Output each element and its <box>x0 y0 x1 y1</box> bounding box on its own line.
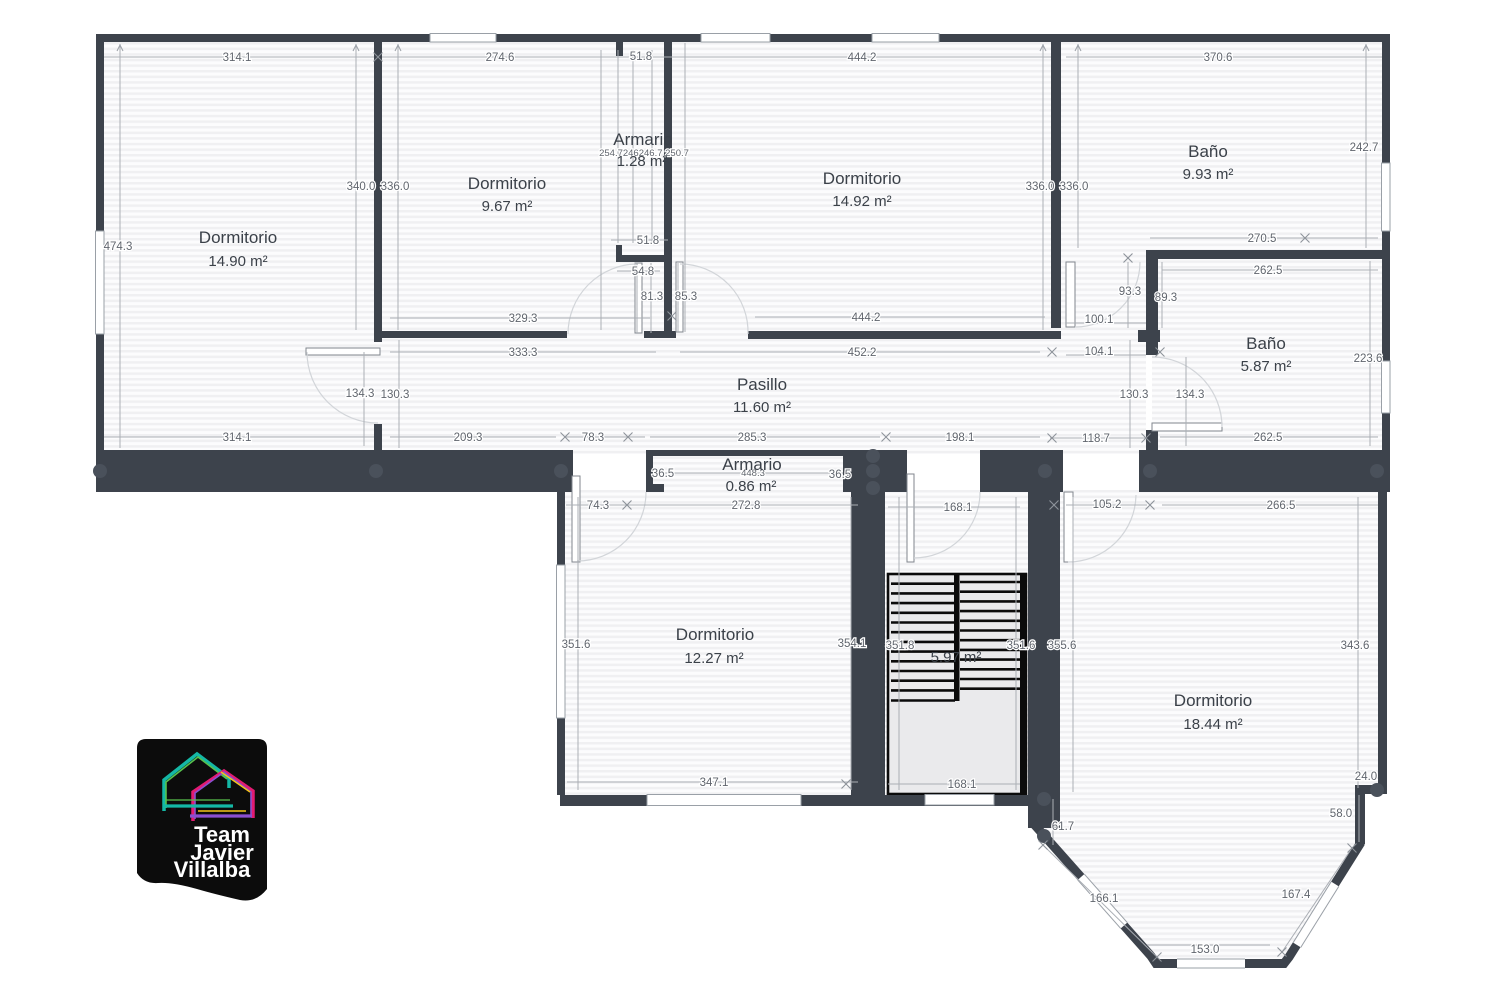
svg-text:209.3: 209.3 <box>454 432 483 444</box>
svg-text:340.0: 340.0 <box>347 181 376 193</box>
svg-text:54.8: 54.8 <box>632 266 654 278</box>
svg-text:343.6: 343.6 <box>1341 640 1370 652</box>
svg-text:354.1: 354.1 <box>838 638 867 650</box>
svg-text:262.5: 262.5 <box>1254 432 1283 444</box>
svg-text:336.0: 336.0 <box>1060 181 1089 193</box>
svg-text:134.3: 134.3 <box>346 388 375 400</box>
svg-text:314.1: 314.1 <box>223 52 252 64</box>
svg-text:153.0: 153.0 <box>1191 944 1220 956</box>
svg-text:347.1: 347.1 <box>700 777 729 789</box>
svg-text:Dormitorio: Dormitorio <box>199 228 277 247</box>
svg-text:444.2: 444.2 <box>848 52 877 64</box>
svg-text:242.7: 242.7 <box>1350 142 1379 154</box>
svg-text:36.5: 36.5 <box>829 469 851 481</box>
svg-text:74.3: 74.3 <box>587 500 609 512</box>
svg-text:14.92 m²: 14.92 m² <box>832 193 891 210</box>
svg-text:Dormitorio: Dormitorio <box>676 625 754 644</box>
svg-text:9.67 m²: 9.67 m² <box>482 198 533 215</box>
svg-text:Armario: Armario <box>613 130 673 149</box>
svg-text:168.1: 168.1 <box>948 779 977 791</box>
svg-text:355.6: 355.6 <box>1048 640 1077 652</box>
svg-text:274.6: 274.6 <box>486 52 515 64</box>
svg-text:351.8: 351.8 <box>886 640 915 652</box>
svg-text:270.5: 270.5 <box>1248 233 1277 245</box>
svg-text:Dormitorio: Dormitorio <box>823 169 901 188</box>
svg-text:36.5: 36.5 <box>652 468 674 480</box>
svg-text:Dormitorio: Dormitorio <box>468 174 546 193</box>
svg-text:Baño: Baño <box>1246 334 1286 353</box>
svg-text:5.97 m²: 5.97 m² <box>931 649 982 666</box>
svg-text:314.1: 314.1 <box>223 432 252 444</box>
svg-text:336.0: 336.0 <box>1026 181 1055 193</box>
svg-text:5.87 m²: 5.87 m² <box>1241 358 1292 375</box>
svg-text:130.3: 130.3 <box>1120 389 1149 401</box>
svg-text:85.3: 85.3 <box>675 291 697 303</box>
svg-text:444.2: 444.2 <box>852 312 881 324</box>
svg-text:223.6: 223.6 <box>1354 353 1383 365</box>
svg-text:351.6: 351.6 <box>1007 640 1036 652</box>
svg-text:1.28 m²: 1.28 m² <box>617 153 668 170</box>
svg-text:105.2: 105.2 <box>1093 499 1122 511</box>
svg-text:452.2: 452.2 <box>848 347 877 359</box>
svg-text:78.3: 78.3 <box>582 432 604 444</box>
svg-text:118.7: 118.7 <box>1082 433 1110 445</box>
svg-text:81.3: 81.3 <box>641 291 663 303</box>
svg-text:0.86 m²: 0.86 m² <box>726 478 777 495</box>
svg-text:130.3: 130.3 <box>381 389 410 401</box>
svg-text:24.0: 24.0 <box>1355 771 1377 783</box>
svg-text:Dormitorio: Dormitorio <box>1174 691 1252 710</box>
svg-text:336.0: 336.0 <box>381 181 410 193</box>
svg-text:Pasillo: Pasillo <box>737 375 787 394</box>
svg-text:Villalba: Villalba <box>174 857 251 882</box>
svg-text:333.3: 333.3 <box>509 347 538 359</box>
svg-text:370.6: 370.6 <box>1204 52 1233 64</box>
svg-text:Baño: Baño <box>1188 142 1228 161</box>
svg-text:14.90 m²: 14.90 m² <box>208 253 267 270</box>
svg-text:104.1: 104.1 <box>1085 346 1114 358</box>
svg-text:9.93 m²: 9.93 m² <box>1183 166 1234 183</box>
svg-text:198.1: 198.1 <box>946 432 975 444</box>
svg-text:89.3: 89.3 <box>1155 292 1177 304</box>
svg-text:474.3: 474.3 <box>104 241 133 253</box>
svg-text:51.8: 51.8 <box>630 51 652 63</box>
svg-text:100.1: 100.1 <box>1085 314 1114 326</box>
svg-text:58.0: 58.0 <box>1330 808 1352 820</box>
svg-text:351.6: 351.6 <box>562 639 591 651</box>
svg-text:166.1: 166.1 <box>1090 893 1119 905</box>
svg-text:168.1: 168.1 <box>944 502 973 514</box>
svg-text:266.5: 266.5 <box>1267 500 1296 512</box>
svg-text:93.3: 93.3 <box>1119 286 1141 298</box>
svg-text:285.3: 285.3 <box>738 432 767 444</box>
svg-text:61.7: 61.7 <box>1052 821 1074 833</box>
svg-text:262.5: 262.5 <box>1254 265 1283 277</box>
svg-text:11.60 m²: 11.60 m² <box>733 399 791 416</box>
svg-text:18.44 m²: 18.44 m² <box>1183 716 1242 733</box>
svg-text:272.8: 272.8 <box>732 500 761 512</box>
svg-text:329.3: 329.3 <box>509 313 538 325</box>
svg-text:12.27 m²: 12.27 m² <box>684 650 743 667</box>
svg-text:Armario: Armario <box>722 455 782 474</box>
svg-text:51.8: 51.8 <box>637 235 659 247</box>
svg-text:134.3: 134.3 <box>1176 389 1205 401</box>
svg-text:167.4: 167.4 <box>1282 889 1311 901</box>
